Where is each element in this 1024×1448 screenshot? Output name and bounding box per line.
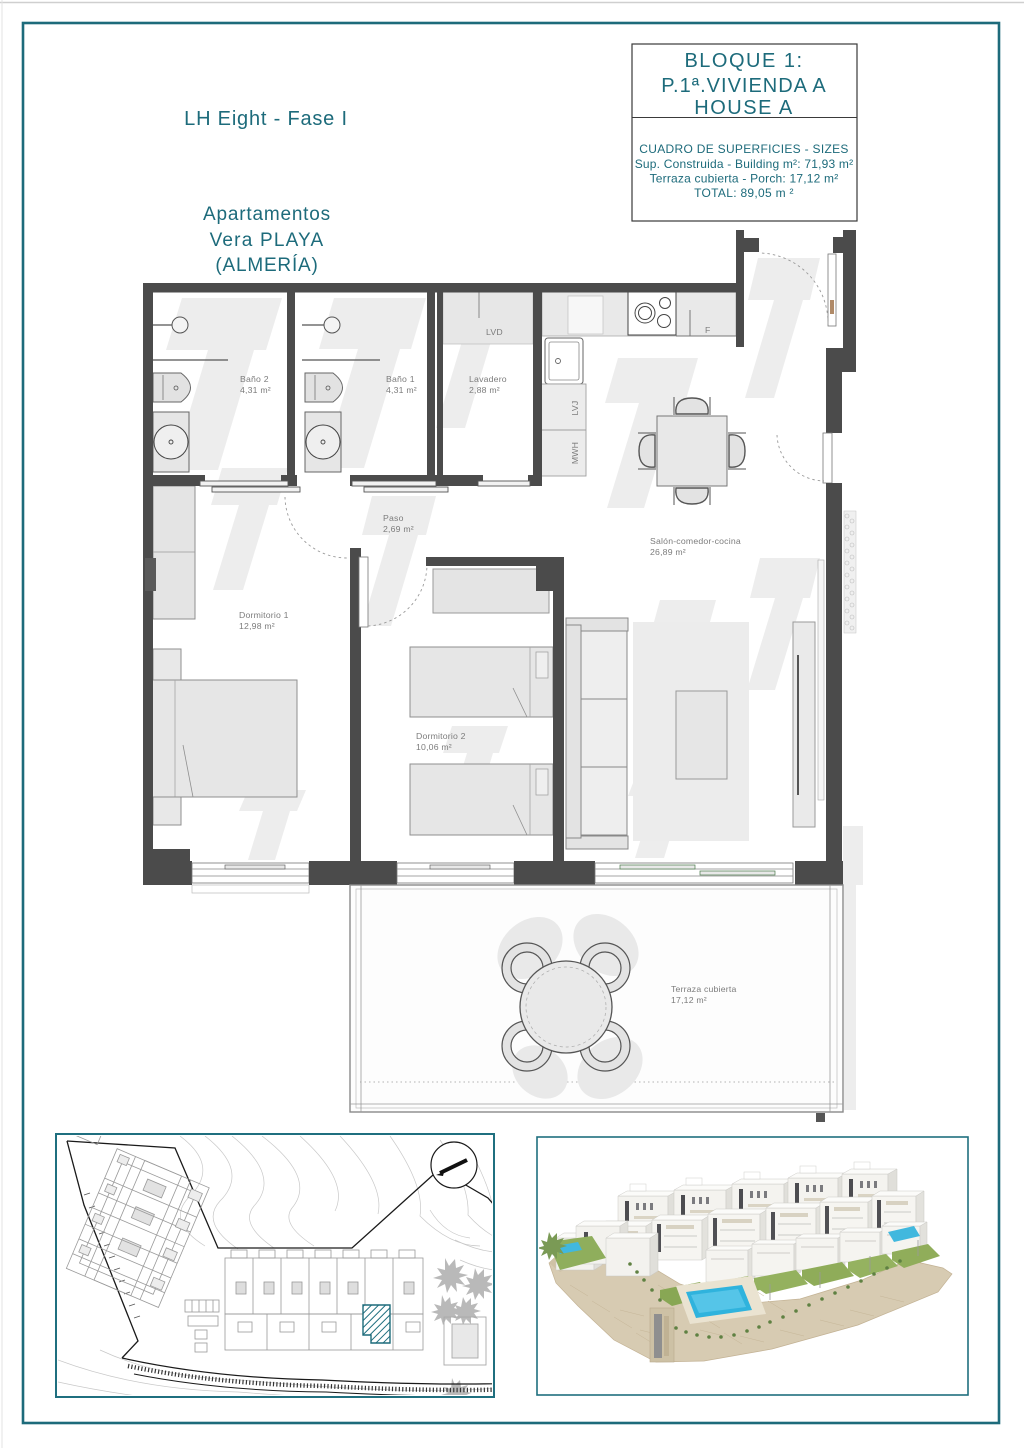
- svg-text:2,69 m²: 2,69 m²: [383, 524, 414, 534]
- svg-text:MWH: MWH: [570, 442, 580, 464]
- svg-text:Terraza cubierta: Terraza cubierta: [671, 984, 737, 994]
- svg-text:Baño 1: Baño 1: [386, 374, 415, 384]
- svg-text:4,31 m²: 4,31 m²: [240, 385, 271, 395]
- svg-text:2,88 m²: 2,88 m²: [469, 385, 500, 395]
- svg-text:Paso: Paso: [383, 513, 404, 523]
- svg-text:Apartamentos: Apartamentos: [203, 204, 331, 225]
- svg-text:LH Eight - Fase I: LH Eight - Fase I: [184, 108, 348, 130]
- svg-text:Lavadero: Lavadero: [469, 374, 507, 384]
- svg-text:BLOQUE 1:: BLOQUE 1:: [684, 50, 803, 72]
- svg-text:Vera PLAYA: Vera PLAYA: [210, 230, 325, 251]
- svg-text:LVD: LVD: [486, 327, 503, 337]
- svg-text:F: F: [705, 325, 711, 335]
- svg-text:Baño 2: Baño 2: [240, 374, 269, 384]
- svg-text:10,06 m²: 10,06 m²: [416, 742, 452, 752]
- svg-text:Salón-comedor-cocina: Salón-comedor-cocina: [650, 536, 741, 546]
- svg-text:Dormitorio 2: Dormitorio 2: [416, 731, 466, 741]
- svg-text:HOUSE A: HOUSE A: [694, 97, 793, 119]
- svg-text:12,98 m²: 12,98 m²: [239, 621, 275, 631]
- svg-text:4,31 m²: 4,31 m²: [386, 385, 417, 395]
- svg-text:Terraza cubierta - Porch: 17: Terraza cubierta - Porch: 17,12 m²: [650, 172, 839, 186]
- svg-text:(ALMERÍA): (ALMERÍA): [215, 255, 318, 276]
- svg-text:17,12 m²: 17,12 m²: [671, 995, 707, 1005]
- svg-text:Sup. Construida - Building m²: Sup. Construida - Building m²: 71,93 m²: [635, 157, 854, 171]
- svg-text:LVJ: LVJ: [570, 401, 580, 416]
- svg-text:P.1ª.VIVIENDA A: P.1ª.VIVIENDA A: [661, 75, 826, 97]
- svg-text:Dormitorio 1: Dormitorio 1: [239, 610, 289, 620]
- svg-text:CUADRO DE SUPERFICIES - SIZES: CUADRO DE SUPERFICIES - SIZES: [639, 142, 848, 156]
- svg-text:TOTAL: 89,05 m ²: TOTAL: 89,05 m ²: [694, 186, 794, 200]
- svg-text:26,89 m²: 26,89 m²: [650, 547, 686, 557]
